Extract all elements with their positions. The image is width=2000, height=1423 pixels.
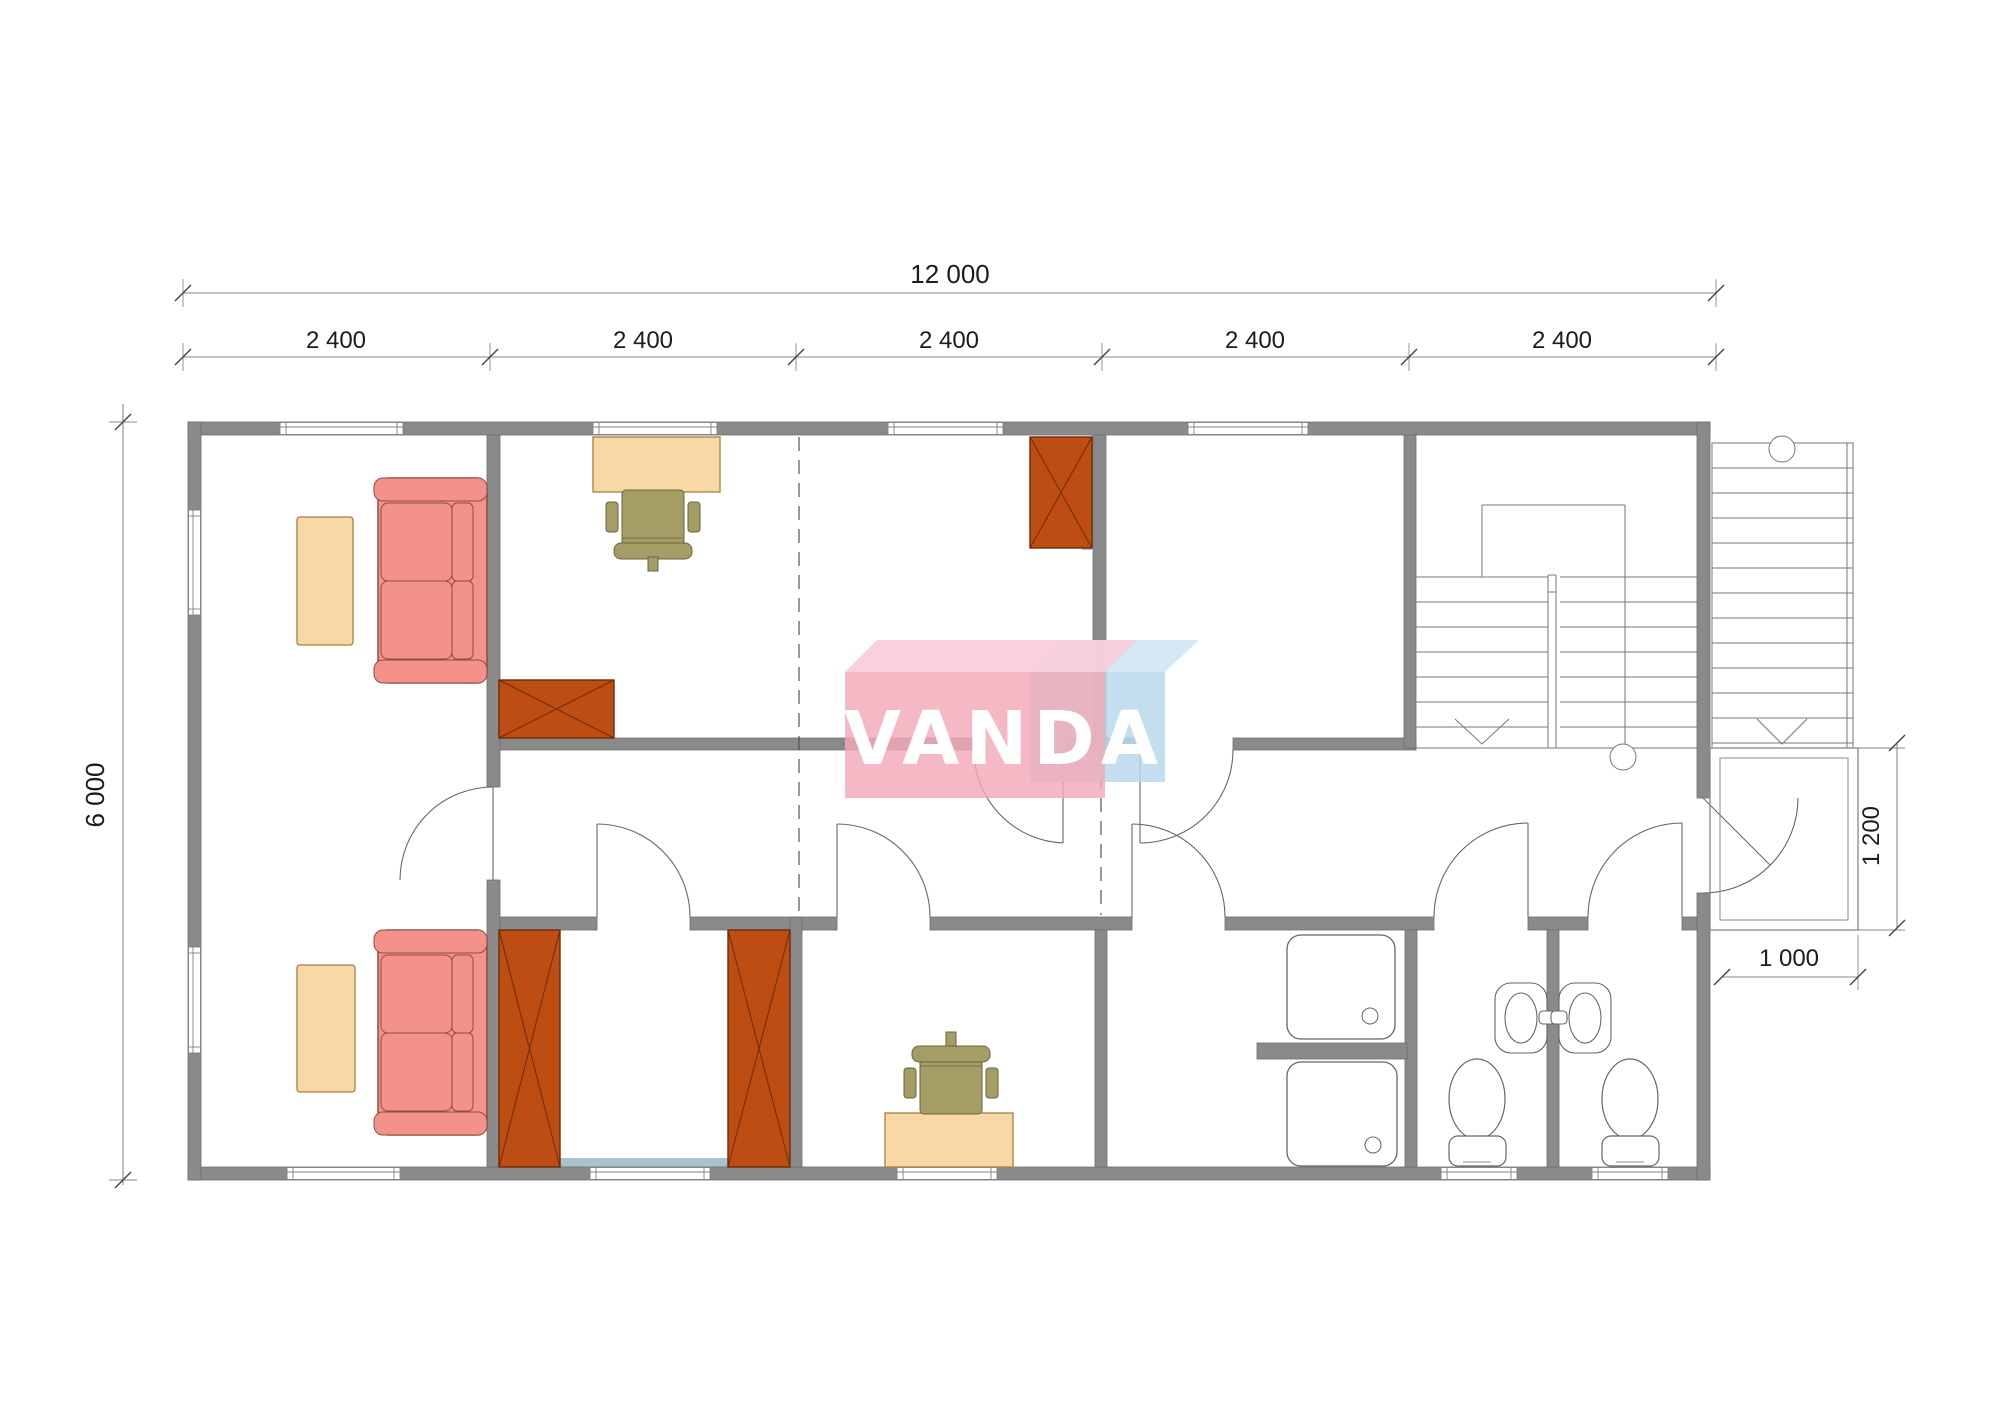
stair-down-arrow-icon: [1757, 719, 1807, 744]
window: [1188, 423, 1308, 435]
window: [287, 1168, 400, 1180]
door-swing: [1132, 824, 1225, 917]
window: [897, 1168, 997, 1180]
window: [590, 1168, 710, 1180]
window: [1441, 1168, 1517, 1180]
desk: [593, 437, 720, 492]
sink: [1551, 983, 1611, 1053]
door-swing: [837, 824, 930, 917]
sink: [1495, 983, 1555, 1053]
dim-porch-depth: 1 200: [1858, 806, 1885, 866]
shower-tray: [1287, 1062, 1397, 1166]
dim-bay: 2 400: [613, 327, 673, 354]
dim-bay: 2 400: [1532, 327, 1592, 354]
window: [189, 947, 201, 1053]
window: [189, 510, 201, 615]
floor-plan-page: VANDA: [0, 0, 2000, 1423]
stair-column-marker: [1610, 744, 1636, 770]
dim-total-width: 12 000: [910, 259, 990, 289]
stair-down-arrow-icon: [1455, 719, 1509, 744]
window: [1592, 1168, 1668, 1180]
dim-height: 6 000: [80, 762, 110, 827]
wardrobe: [499, 680, 614, 738]
watermark-logo: VANDA: [844, 640, 1199, 798]
logo-pink-top-face: [845, 640, 1137, 672]
watermark-brand-text: VANDA: [844, 696, 1164, 782]
office-chair: [606, 490, 700, 571]
sofa: [374, 930, 487, 1135]
entrance-door-swing: [1703, 798, 1798, 893]
sofa: [374, 478, 487, 683]
shower-tray: [1287, 935, 1395, 1039]
dim-bay: 2 400: [919, 327, 979, 354]
door-swing: [400, 787, 493, 880]
office-chair: [904, 1032, 998, 1114]
dim-porch-width: 1 000: [1759, 945, 1819, 972]
desk: [885, 1113, 1013, 1167]
window: [280, 423, 403, 435]
floor-plan-svg: VANDA: [0, 0, 2000, 1423]
coffee-table: [297, 965, 355, 1092]
toilet: [1449, 1059, 1506, 1166]
wardrobe: [728, 930, 790, 1167]
exterior-stairs: [1712, 436, 1853, 748]
door-swing: [1434, 823, 1528, 917]
stair-railing: [1548, 575, 1556, 748]
coffee-table: [297, 517, 353, 645]
toilet: [1602, 1059, 1659, 1166]
wardrobe: [499, 930, 560, 1167]
stair-column-marker: [1769, 436, 1795, 462]
interior-staircase: [1416, 505, 1697, 770]
window: [888, 423, 1003, 435]
porch-landing: [1710, 748, 1858, 930]
door-swing: [1588, 823, 1682, 917]
door-swing: [597, 824, 690, 917]
window: [593, 423, 717, 435]
dim-bay: 2 400: [306, 327, 366, 354]
wardrobe: [1030, 437, 1092, 548]
dim-bay: 2 400: [1225, 327, 1285, 354]
